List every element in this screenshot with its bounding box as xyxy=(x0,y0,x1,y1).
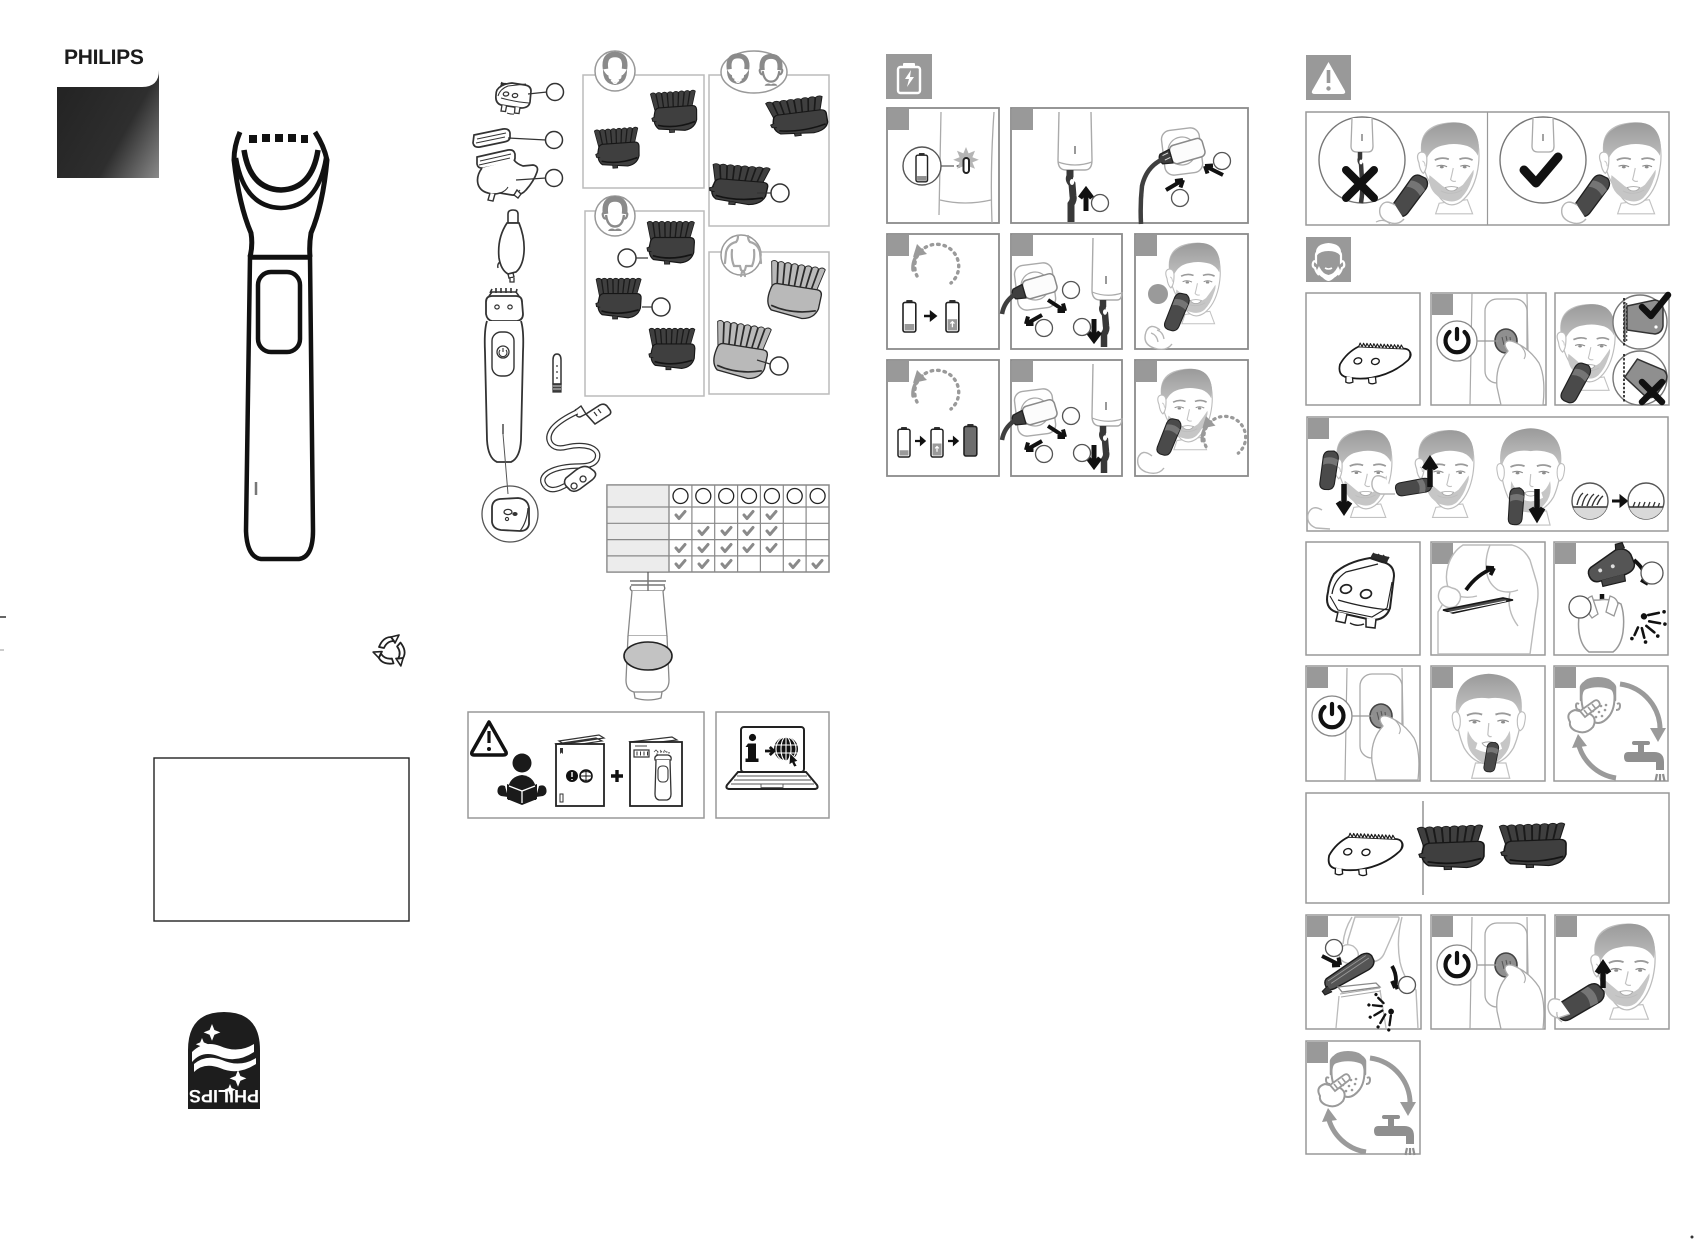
svg-text:PHILIPS: PHILIPS xyxy=(64,46,144,69)
svg-text:PHILIPS: PHILIPS xyxy=(189,1086,259,1106)
